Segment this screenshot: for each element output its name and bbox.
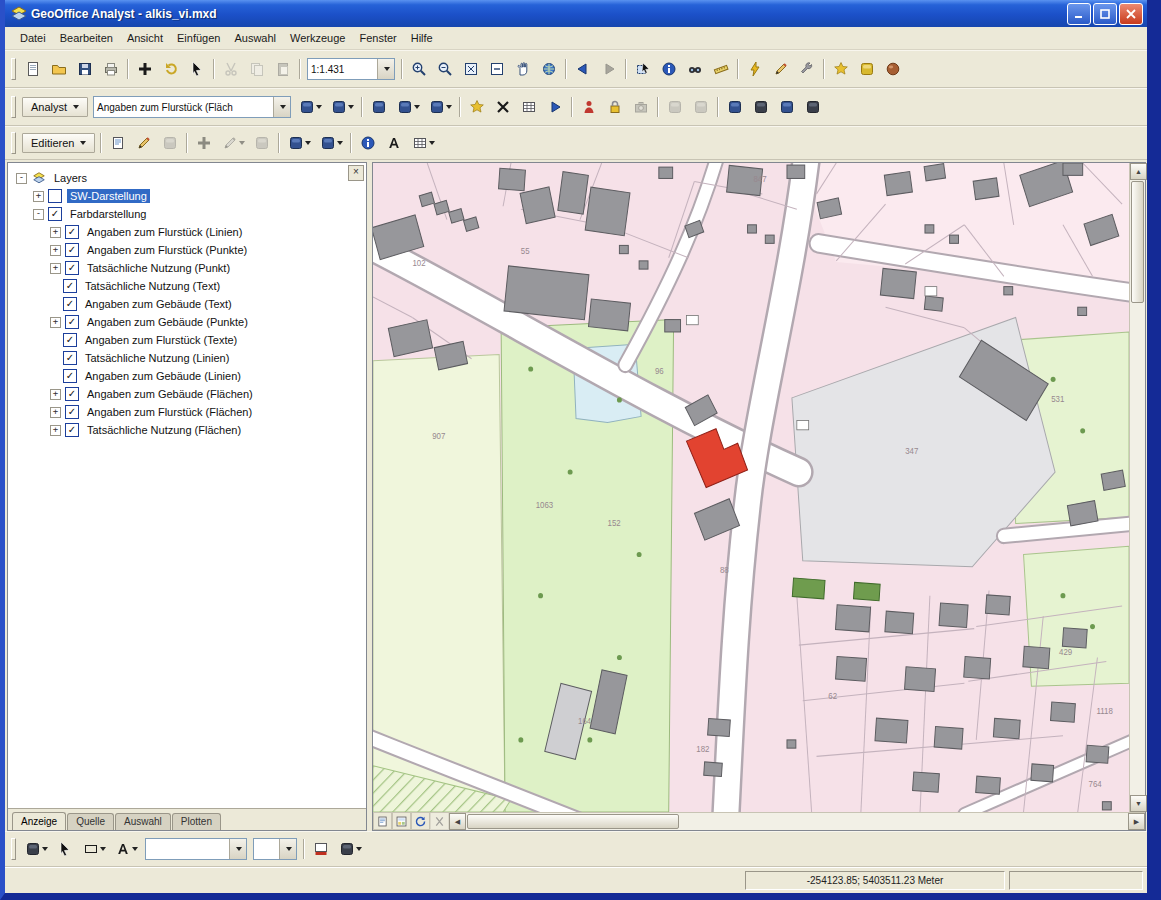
menu-item-ansicht[interactable]: Ansicht: [120, 29, 170, 47]
identify-button[interactable]: [656, 56, 682, 82]
editor-toolbar: Editieren: [5, 126, 1147, 160]
sketch-pencil-button[interactable]: [768, 56, 794, 82]
toc-close-icon[interactable]: ×: [348, 165, 364, 181]
toolbar-separator: [361, 97, 363, 117]
toc-layer-row[interactable]: +✓Angaben zum Flurstück (Linien): [8, 223, 366, 241]
toc-layer-row[interactable]: -✓Farbdarstellung: [8, 205, 366, 223]
star-tool-button[interactable]: [464, 94, 490, 120]
layer-label: Tatsächliche Nutzung (Flächen): [84, 423, 244, 437]
toolbar-separator: [350, 133, 352, 153]
chevron-down-icon: [429, 141, 435, 145]
toolbar-separator: [100, 133, 102, 153]
parcel-number-label: 847: [753, 174, 767, 183]
expand-icon[interactable]: +: [33, 191, 44, 202]
toolbar-separator: [459, 97, 461, 117]
toc-layer-row[interactable]: +✓Angaben zum Flurstück (Flächen): [8, 403, 366, 421]
chevron-down-icon: [348, 105, 354, 109]
extra-tool-button-4[interactable]: [748, 94, 774, 120]
parcel-number-label: 102: [412, 259, 426, 268]
chevron-down-icon: [356, 847, 362, 851]
menu-item-einfgen[interactable]: Einfügen: [170, 29, 227, 47]
toc-layer-row[interactable]: +✓Tatsächliche Nutzung (Punkt): [8, 259, 366, 277]
chevron-down-icon: [446, 105, 452, 109]
parcel-number-label: 55: [521, 247, 530, 256]
parcel-number-label: 531: [1051, 395, 1065, 404]
layer-tree: -Layers+SW-Darstellung-✓Farbdarstellung+…: [8, 163, 366, 808]
analysis-tool-button-2[interactable]: [326, 94, 358, 120]
chevron-down-icon: [239, 141, 245, 145]
pause-drawing-button[interactable]: [430, 813, 449, 830]
undo-button[interactable]: [158, 56, 184, 82]
toc-layer-row[interactable]: +✓Angaben zum Gebäude (Flächen): [8, 385, 366, 403]
window-title: GeoOffice Analyst - alkis_vi.mxd: [31, 7, 1067, 21]
layer-label: Tatsächliche Nutzung (Text): [82, 279, 223, 293]
toc-layer-row[interactable]: ✓Tatsächliche Nutzung (Linien): [8, 349, 366, 367]
menu-item-datei[interactable]: Datei: [13, 29, 53, 47]
expand-icon[interactable]: +: [50, 407, 61, 418]
coordinate-readout: -254123.85; 5403511.23 Meter: [745, 871, 1005, 890]
edit-table-button[interactable]: [407, 130, 439, 156]
parcel-number-label: 88: [720, 566, 729, 575]
parcel-number-label: 1118: [1096, 707, 1113, 716]
edit-notebook-button[interactable]: [105, 130, 131, 156]
horizontal-scroll-thumb[interactable]: [467, 814, 679, 829]
analysis-tool-button-1[interactable]: [294, 94, 326, 120]
layer-visibility-checkbox[interactable]: ✓: [65, 387, 79, 401]
maximize-button[interactable]: [1093, 3, 1117, 25]
toc-tab-plotten[interactable]: Plotten: [172, 813, 221, 830]
delete-tool-button[interactable]: [490, 94, 516, 120]
add-data-button[interactable]: [132, 56, 158, 82]
map-horizontal-scrollbar: ◀ ▶: [373, 812, 1145, 830]
toc-tab-anzeige[interactable]: Anzeige: [12, 812, 66, 830]
map-vertical-scrollbar[interactable]: ▲ ▼: [1129, 163, 1145, 812]
edit-task-button[interactable]: [315, 130, 347, 156]
toolbar-separator: [299, 59, 301, 79]
parcel-number-label: 764: [1089, 780, 1103, 789]
snapshot-button[interactable]: [628, 94, 654, 120]
chevron-down-icon: [305, 141, 311, 145]
analyst-toolbar: AnalystAngaben zum Flurstück (Fläch: [5, 88, 1147, 126]
catalog-button[interactable]: [854, 56, 880, 82]
hyperlink-button[interactable]: [742, 56, 768, 82]
analyst-menu-button[interactable]: Analyst: [22, 97, 88, 117]
layer-visibility-checkbox[interactable]: ✓: [65, 243, 79, 257]
extra-tool-button-6[interactable]: [800, 94, 826, 120]
parcel-number-label: 429: [1059, 648, 1073, 657]
toolbar-separator: [737, 59, 739, 79]
open-button[interactable]: [46, 56, 72, 82]
toc-layer-row[interactable]: ✓Angaben zum Flurstück (Texte): [8, 331, 366, 349]
fixed-zoom-out-button[interactable]: [484, 56, 510, 82]
chevron-down-icon[interactable]: [377, 59, 394, 79]
owner-info-button[interactable]: [576, 94, 602, 120]
layer-visibility-checkbox[interactable]: ✓: [65, 423, 79, 437]
editor-menu-button[interactable]: Editieren: [22, 133, 95, 153]
toc-layer-row[interactable]: +✓Tatsächliche Nutzung (Flächen): [8, 421, 366, 439]
menu-item-werkzeuge[interactable]: Werkzeuge: [283, 29, 352, 47]
parcel-number-label: 347: [905, 446, 919, 455]
toc-layer-row[interactable]: ✓Tatsächliche Nutzung (Text): [8, 277, 366, 295]
layer-label: Angaben zum Gebäude (Linien): [82, 369, 244, 383]
menu-bar: DateiBearbeitenAnsichtEinfügenAuswahlWer…: [5, 27, 1147, 50]
parcel-number-label: 1063: [536, 501, 554, 510]
attribute-table-button[interactable]: [516, 94, 542, 120]
scroll-up-icon[interactable]: ▲: [1130, 163, 1147, 180]
data-view-button[interactable]: [373, 813, 392, 830]
layer-visibility-checkbox[interactable]: ✓: [65, 225, 79, 239]
layer-label: Farbdarstellung: [67, 207, 149, 221]
toolbar-separator: [213, 59, 215, 79]
draw-fill-button[interactable]: [334, 836, 366, 862]
toolbar-separator: [127, 59, 129, 79]
chevron-down-icon: [42, 847, 48, 851]
draw-text-button[interactable]: [110, 836, 142, 862]
chevron-down-icon: [73, 105, 79, 109]
toolbar-separator: [565, 59, 567, 79]
globe-3d-button[interactable]: [880, 56, 906, 82]
favorites-button[interactable]: [828, 56, 854, 82]
chevron-down-icon[interactable]: [273, 97, 290, 117]
edit-sketch-button[interactable]: [131, 130, 157, 156]
layer-visibility-checkbox[interactable]: ✓: [63, 369, 77, 383]
layer-label: Angaben zum Flurstück (Flächen): [84, 405, 255, 419]
layer-visibility-checkbox[interactable]: ✓: [63, 279, 77, 293]
layer-label: SW-Darstellung: [67, 189, 150, 203]
print-button[interactable]: [98, 56, 124, 82]
chevron-down-icon: [132, 847, 138, 851]
extra-tool-button-1[interactable]: [662, 94, 688, 120]
toolbar-separator: [401, 59, 403, 79]
chevron-down-icon[interactable]: [279, 839, 296, 859]
scroll-down-icon[interactable]: ▼: [1130, 795, 1147, 812]
layer-label: Angaben zum Gebäude (Text): [82, 297, 235, 311]
extra-tool-button-2[interactable]: [688, 94, 714, 120]
analyst-menu-button-label: Analyst: [31, 101, 67, 113]
draw-pointer-button[interactable]: [52, 836, 78, 862]
paste-button[interactable]: [270, 56, 296, 82]
map-scale-combo[interactable]: 1:1.431: [307, 58, 395, 80]
zoom-in-button[interactable]: [406, 56, 432, 82]
toc-layer-row[interactable]: ✓Angaben zum Gebäude (Text): [8, 295, 366, 313]
fixed-zoom-in-button[interactable]: [458, 56, 484, 82]
table-of-contents-panel: × -Layers+SW-Darstellung-✓Farbdarstellun…: [7, 162, 367, 831]
new-document-button[interactable]: [20, 56, 46, 82]
extra-tool-button-3[interactable]: [722, 94, 748, 120]
menu-item-fenster[interactable]: Fenster: [352, 29, 403, 47]
draw-font-combo[interactable]: [145, 838, 247, 860]
menu-item-bearbeiten[interactable]: Bearbeiten: [53, 29, 120, 47]
minimize-button[interactable]: [1067, 3, 1091, 25]
layer-visibility-checkbox[interactable]: ✓: [65, 405, 79, 419]
draw-shape-button[interactable]: [78, 836, 110, 862]
layers-icon: [31, 171, 47, 185]
analysis-tool-button-4[interactable]: [392, 94, 424, 120]
expand-icon[interactable]: +: [50, 263, 61, 274]
toolbar-grip-handle[interactable]: [11, 132, 16, 154]
application-window: GeoOffice Analyst - alkis_vi.mxd DateiBe…: [0, 0, 1161, 900]
tools-button[interactable]: [794, 56, 820, 82]
toolbar-separator: [278, 133, 280, 153]
toolbar-grip-handle[interactable]: [11, 838, 16, 860]
parcel-number-label: 96: [655, 367, 664, 376]
toc-layer-row[interactable]: ✓Angaben zum Gebäude (Linien): [8, 367, 366, 385]
layer-visibility-checkbox[interactable]: ✓: [63, 333, 77, 347]
collapse-icon[interactable]: -: [33, 209, 44, 220]
next-extent-button[interactable]: [596, 56, 622, 82]
extra-tool-button-5[interactable]: [774, 94, 800, 120]
measure-button[interactable]: [708, 56, 734, 82]
status-cell: [1009, 871, 1143, 890]
edit-add-button[interactable]: [191, 130, 217, 156]
content-area: × -Layers+SW-Darstellung-✓Farbdarstellun…: [5, 160, 1147, 831]
app-icon: [11, 6, 27, 22]
toc-layer-row[interactable]: +✓Angaben zum Gebäude (Punkte): [8, 313, 366, 331]
layer-visibility-checkbox[interactable]: ✓: [63, 351, 77, 365]
layer-visibility-checkbox[interactable]: [48, 189, 62, 203]
parcel-number-label: 907: [432, 432, 446, 441]
toc-tab-quelle[interactable]: Quelle: [67, 813, 114, 830]
copy-button[interactable]: [244, 56, 270, 82]
draw-size-combo[interactable]: [253, 838, 297, 860]
layout-view-button[interactable]: [392, 813, 411, 830]
menu-item-hilfe[interactable]: Hilfe: [404, 29, 440, 47]
toolbar-separator: [823, 59, 825, 79]
edit-pencil-button[interactable]: [217, 130, 249, 156]
edit-tool-button-1[interactable]: [157, 130, 183, 156]
layer-visibility-checkbox[interactable]: ✓: [48, 207, 62, 221]
scroll-right-icon[interactable]: ▶: [1128, 813, 1145, 830]
cut-button[interactable]: [218, 56, 244, 82]
scroll-left-icon[interactable]: ◀: [449, 813, 466, 830]
parcel-number-label: 164: [578, 717, 592, 726]
toolbar-separator: [657, 97, 659, 117]
layer-visibility-checkbox[interactable]: ✓: [65, 315, 79, 329]
toolbar-separator: [186, 133, 188, 153]
layer-label: Angaben zum Flurstück (Texte): [82, 333, 240, 347]
zoom-out-button[interactable]: [432, 56, 458, 82]
layer-label: Layers: [51, 171, 90, 185]
edit-info-button[interactable]: [355, 130, 381, 156]
layer-label: Angaben zum Flurstück (Linien): [84, 225, 245, 239]
find-button[interactable]: [682, 56, 708, 82]
select-features-button[interactable]: [630, 56, 656, 82]
expand-icon[interactable]: +: [50, 317, 61, 328]
toolbar-grip-handle[interactable]: [11, 96, 16, 118]
horizontal-scroll-track[interactable]: [466, 813, 1128, 830]
analysis-tool-button-3[interactable]: [366, 94, 392, 120]
draw-toolbar: [5, 831, 1147, 867]
close-button[interactable]: [1119, 3, 1143, 25]
chevron-down-icon[interactable]: [229, 839, 246, 859]
pan-button[interactable]: [510, 56, 536, 82]
title-bar[interactable]: GeoOffice Analyst - alkis_vi.mxd: [5, 0, 1147, 27]
edit-text-button[interactable]: [381, 130, 407, 156]
toolbar-separator: [571, 97, 573, 117]
chevron-down-icon: [100, 847, 106, 851]
refresh-view-button[interactable]: [411, 813, 430, 830]
previous-extent-button[interactable]: [570, 56, 596, 82]
map-scale-combo-value: 1:1.431: [308, 64, 377, 75]
vertical-scroll-thumb[interactable]: [1131, 181, 1144, 303]
chevron-down-icon: [414, 105, 420, 109]
expand-icon[interactable]: +: [50, 425, 61, 436]
toc-layer-row[interactable]: -Layers: [8, 169, 366, 187]
analysis-tool-button-5[interactable]: [424, 94, 456, 120]
layer-label: Angaben zum Gebäude (Punkte): [84, 315, 251, 329]
toc-layer-row[interactable]: +SW-Darstellung: [8, 187, 366, 205]
expand-icon[interactable]: +: [50, 227, 61, 238]
next-record-button[interactable]: [542, 94, 568, 120]
draw-color-button[interactable]: [308, 836, 334, 862]
layer-select-combo-value: Angaben zum Flurstück (Fläch: [94, 102, 273, 113]
full-extent-button[interactable]: [536, 56, 562, 82]
chevron-down-icon: [316, 105, 322, 109]
layer-label: Tatsächliche Nutzung (Linien): [82, 351, 232, 365]
layer-label: Angaben zum Gebäude (Flächen): [84, 387, 256, 401]
toc-layer-row[interactable]: +✓Angaben zum Flurstück (Punkte): [8, 241, 366, 259]
layer-visibility-checkbox[interactable]: ✓: [65, 261, 79, 275]
toolbar-separator: [717, 97, 719, 117]
expand-icon[interactable]: +: [50, 245, 61, 256]
menu-item-auswahl[interactable]: Auswahl: [227, 29, 283, 47]
layer-label: Tatsächliche Nutzung (Punkt): [84, 261, 233, 275]
chevron-down-icon: [80, 141, 86, 145]
toc-tab-auswahl[interactable]: Auswahl: [115, 813, 171, 830]
save-button[interactable]: [72, 56, 98, 82]
collapse-icon[interactable]: -: [16, 173, 27, 184]
map-window: 8471025590710631529634753116488429111876…: [372, 162, 1146, 831]
parcel-number-label: 152: [608, 518, 622, 527]
editor-menu-button-label: Editieren: [31, 137, 74, 149]
layer-select-combo[interactable]: Angaben zum Flurstück (Fläch: [93, 96, 291, 118]
standard-toolbar: 1:1.431: [5, 50, 1147, 88]
layer-visibility-checkbox[interactable]: ✓: [63, 297, 77, 311]
toolbar-separator: [303, 839, 305, 859]
parcel-number-label: 182: [696, 745, 710, 754]
toc-tab-bar: AnzeigeQuelleAuswahlPlotten: [8, 808, 366, 830]
layer-label: Angaben zum Flurstück (Punkte): [84, 243, 250, 257]
edit-tool-button-2[interactable]: [249, 130, 275, 156]
lock-tool-button[interactable]: [602, 94, 628, 120]
expand-icon[interactable]: +: [50, 389, 61, 400]
status-bar: -254123.85; 5403511.23 Meter: [5, 867, 1147, 893]
draw-select-button[interactable]: [20, 836, 52, 862]
toolbar-separator: [625, 59, 627, 79]
map-canvas[interactable]: 8471025590710631529634753116488429111876…: [373, 163, 1129, 812]
select-elements-button[interactable]: [184, 56, 210, 82]
edit-target-button[interactable]: [283, 130, 315, 156]
toolbar-grip-handle[interactable]: [11, 58, 16, 80]
chevron-down-icon: [337, 141, 343, 145]
parcel-number-label: 62: [828, 692, 837, 701]
